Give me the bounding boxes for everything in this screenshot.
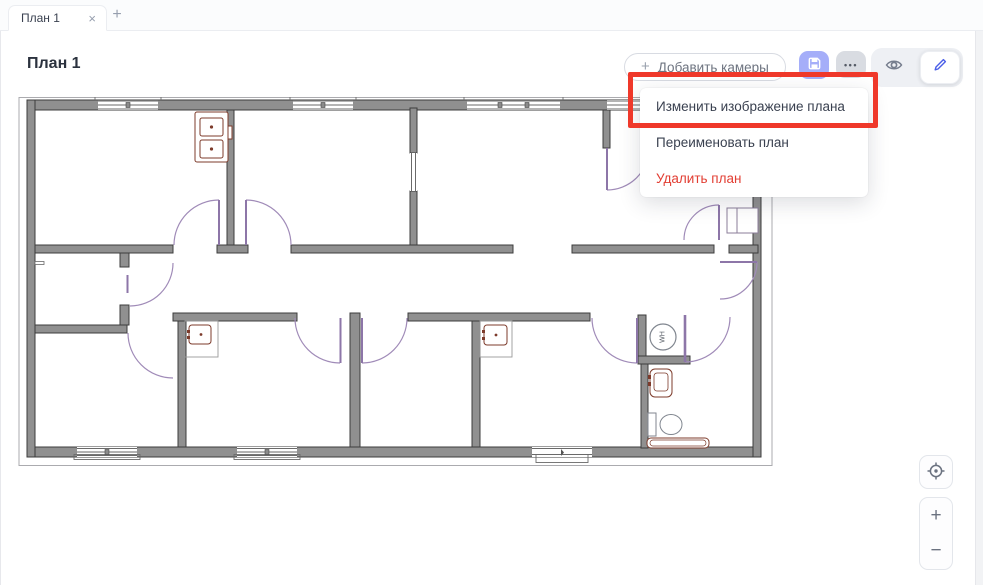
tab-label: План 1 [21, 11, 86, 25]
zoom-control: + − [919, 497, 953, 570]
tab-plan-1[interactable]: План 1 × [8, 5, 107, 31]
menu-item-change-plan-image[interactable]: Изменить изображение плана [640, 88, 868, 124]
more-options-button[interactable]: ••• [836, 51, 866, 78]
eye-icon [884, 57, 904, 78]
add-cameras-button[interactable]: + Добавить камеры [624, 53, 786, 81]
save-plan-button[interactable] [799, 51, 829, 79]
scrollbar-track[interactable] [975, 31, 983, 585]
view-edit-toggle [871, 48, 963, 87]
view-mode-button[interactable] [871, 48, 917, 87]
menu-item-rename-plan[interactable]: Переименовать план [640, 124, 868, 160]
zoom-in-button[interactable]: + [920, 498, 952, 534]
menu-item-delete-plan[interactable]: Удалить план [640, 161, 868, 197]
plus-icon: + [641, 58, 650, 75]
tab-close-icon[interactable]: × [86, 11, 98, 26]
add-cameras-label: Добавить камеры [658, 60, 769, 75]
window-left-edge [0, 31, 1, 585]
locate-button[interactable] [919, 455, 953, 489]
crosshair-icon [926, 461, 946, 484]
pencil-icon [932, 57, 948, 78]
floppy-disk-icon [807, 56, 822, 74]
water-heater-label: WH [660, 331, 667, 343]
plan-editor-window: План 1 × + План 1 + Добавить камеры ••• [0, 0, 983, 585]
page-title: План 1 [27, 55, 81, 73]
tab-bar: План 1 × + [0, 0, 983, 31]
edit-mode-button[interactable] [920, 51, 960, 84]
plan-context-menu: Изменить изображение плана Переименовать… [640, 88, 868, 197]
zoom-out-button[interactable]: − [920, 534, 952, 570]
new-tab-button[interactable]: + [107, 5, 127, 25]
